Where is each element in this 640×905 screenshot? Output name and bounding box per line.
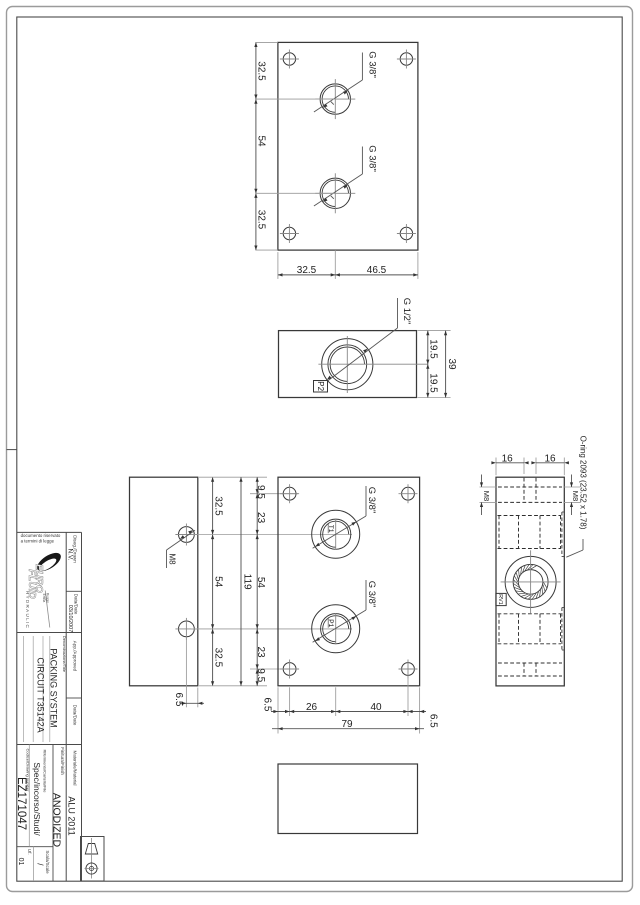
svg-text:26: 26	[306, 702, 318, 713]
svg-text:Emilia: Emilia	[42, 594, 46, 603]
svg-text:CIRCUIT T35142A: CIRCUIT T35142A	[36, 657, 46, 732]
svg-text:O-ring 2093 (23.52 x 1.78): O-ring 2093 (23.52 x 1.78)	[579, 436, 588, 530]
svg-text:32.5: 32.5	[255, 61, 266, 81]
svg-text:a termini di legge: a termini di legge	[21, 538, 55, 543]
svg-text:54: 54	[255, 577, 266, 589]
svg-text:46.5: 46.5	[367, 265, 387, 276]
svg-text:23: 23	[255, 646, 266, 658]
svg-text:16: 16	[544, 454, 556, 465]
svg-text:App./Approved: App./Approved	[73, 641, 78, 672]
svg-text:Data/Date: Data/Date	[73, 594, 78, 615]
svg-text:ANODIZED: ANODIZED	[51, 793, 63, 848]
svg-text:Denominazione/Title: Denominazione/Title	[62, 636, 67, 673]
svg-text:01: 01	[17, 858, 24, 866]
svg-text:Materiale/Material: Materiale/Material	[73, 751, 78, 786]
svg-text:Uf.: Uf.	[27, 849, 32, 855]
svg-text:6.5: 6.5	[427, 714, 438, 728]
svg-text:M8: M8	[571, 491, 580, 501]
svg-text:39: 39	[446, 358, 457, 370]
svg-text:Scala/Scale: Scala/Scale	[45, 850, 50, 874]
svg-text:G 3/8": G 3/8"	[367, 145, 378, 172]
svg-text:Data/Date: Data/Date	[73, 705, 78, 726]
svg-text:32.5: 32.5	[212, 648, 223, 668]
svg-text:9.5: 9.5	[255, 668, 266, 682]
svg-text:N.V.: N.V.	[66, 548, 73, 560]
svg-text:M8: M8	[167, 553, 176, 565]
svg-text:32.5: 32.5	[255, 210, 266, 230]
svg-text:RV1: RV1	[497, 594, 503, 605]
svg-text:P2: P2	[316, 381, 325, 391]
svg-text:16: 16	[502, 454, 514, 465]
svg-text:ALU 2011: ALU 2011	[67, 796, 77, 835]
svg-text:40: 40	[370, 702, 382, 713]
svg-text:32.5: 32.5	[297, 265, 317, 276]
svg-text:EZ171047: EZ171047	[15, 777, 27, 830]
svg-text:23: 23	[255, 512, 266, 524]
svg-text:6.5: 6.5	[261, 698, 272, 712]
svg-text:G 3/8": G 3/8"	[366, 487, 377, 514]
svg-text:HYDRAULIC: HYDRAULIC	[25, 591, 30, 629]
svg-text:03/10/2007: 03/10/2007	[67, 605, 73, 633]
svg-text:79: 79	[341, 719, 353, 730]
svg-text:9.5: 9.5	[255, 485, 266, 499]
svg-text:6.5: 6.5	[173, 693, 184, 707]
svg-text:32.5: 32.5	[212, 496, 223, 516]
svg-text:Spec/incorso/Studi/: Spec/incorso/Studi/	[32, 762, 42, 836]
svg-text:documento riservato: documento riservato	[21, 533, 61, 538]
svg-text:19.5: 19.5	[427, 373, 438, 393]
svg-text:119: 119	[241, 574, 252, 590]
svg-text:PACKING SYSTEM: PACKING SYSTEM	[49, 648, 59, 727]
svg-text:M8: M8	[482, 491, 491, 501]
svg-text:19.5: 19.5	[427, 339, 438, 359]
svg-text:54: 54	[255, 135, 266, 147]
svg-text:G 3/8": G 3/8"	[366, 581, 377, 608]
svg-text:G 3/8": G 3/8"	[367, 51, 378, 78]
svg-text:G 1/2": G 1/2"	[401, 298, 412, 325]
svg-text:54: 54	[212, 576, 223, 588]
svg-text:Finitura/Finish: Finitura/Finish	[60, 747, 65, 775]
